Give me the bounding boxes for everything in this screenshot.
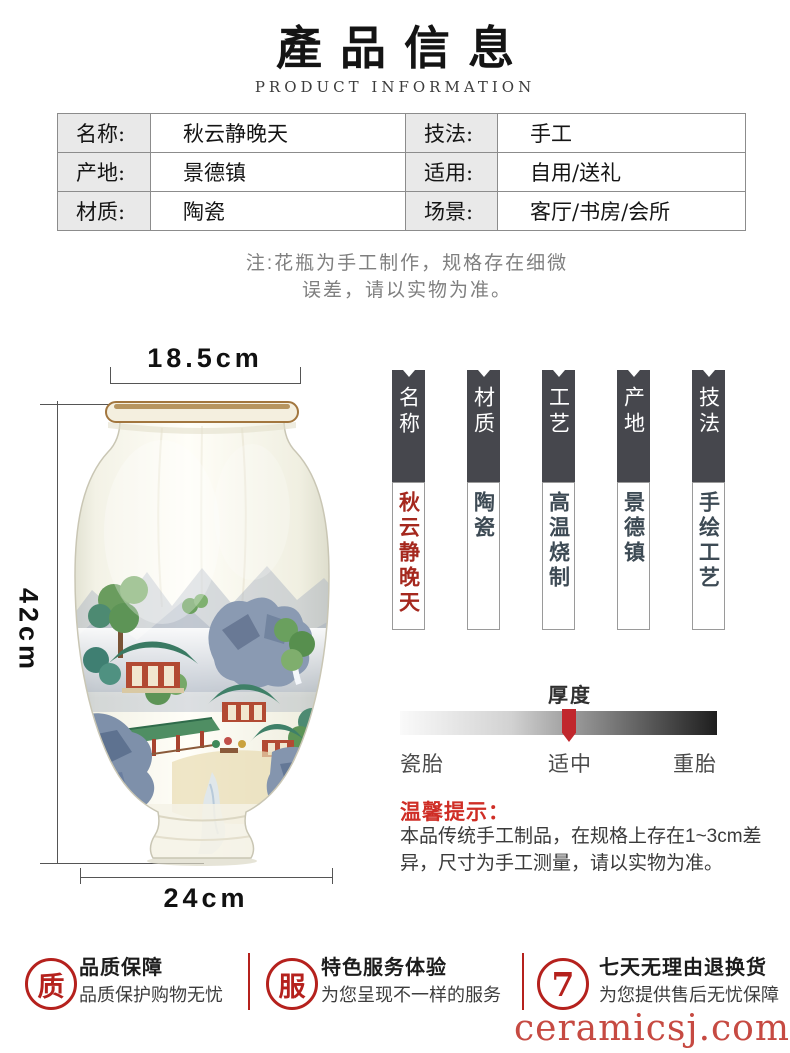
banner-technique-header-label: 技法 [694, 370, 724, 482]
dimension-bottom-width: 24cm [106, 883, 306, 914]
service-badge-title: 特色服务体验 [321, 951, 447, 980]
spec-value-usage: 自用/送礼 [498, 153, 746, 192]
banner-name-value-label: 秋云静晚天 [394, 483, 424, 629]
banner-craft-value-label: 高温烧制 [544, 483, 574, 629]
watermark: ceramicsj.com [514, 1008, 790, 1049]
spec-value-scene: 客厅/书房/会所 [498, 192, 746, 231]
banner-material-header: 材质 [467, 370, 500, 482]
quality-badge-subtitle: 品质保护购物无忧 [79, 981, 223, 1007]
banner-technique-value-label: 手绘工艺 [694, 483, 724, 629]
service-divider [248, 953, 250, 1010]
banner-origin-value-label: 景德镇 [619, 483, 649, 629]
banner-technique: 技法 手绘工艺 [692, 370, 725, 630]
banner-origin: 产地 景德镇 [617, 370, 650, 630]
thickness-marker-icon [562, 709, 576, 742]
tips-line-2: 异，尺寸为手工测量，请以实物为准。 [400, 850, 775, 877]
spec-label-usage: 适用: [406, 153, 498, 192]
service-badge-subtitle: 为您呈现不一样的服务 [321, 981, 501, 1007]
banner-name: 名称 秋云静晚天 [392, 370, 425, 630]
spec-label-scene: 场景: [406, 192, 498, 231]
banner-material-value: 陶瓷 [467, 482, 500, 630]
spec-value-name: 秋云静晚天 [151, 114, 406, 153]
banner-material-header-label: 材质 [469, 370, 499, 482]
dimension-top-width: 18.5cm [105, 343, 305, 374]
note-line-2: 误差，请以实物为准。 [12, 277, 790, 304]
banner-origin-value: 景德镇 [617, 482, 650, 630]
spec-value-technique: 手工 [498, 114, 746, 153]
measure-tick [300, 367, 301, 384]
seven-day-badge-title: 七天无理由退换货 [599, 951, 767, 980]
measure-tick [110, 367, 111, 384]
banner-name-header: 名称 [392, 370, 425, 482]
banner-material-value-label: 陶瓷 [469, 483, 499, 629]
thickness-gradient-bar [400, 711, 717, 735]
thickness-label-heavy: 重胎 [673, 748, 717, 778]
spec-label-material: 材质: [58, 192, 151, 231]
measure-line-bottom [80, 877, 333, 878]
banner-craft-header: 工艺 [542, 370, 575, 482]
vase-product-image [62, 392, 342, 874]
spec-value-origin: 景德镇 [151, 153, 406, 192]
thickness-label-thin: 瓷胎 [400, 748, 444, 778]
thickness-title: 厚度 [520, 679, 620, 708]
handmade-note: 注:花瓶为手工制作，规格存在细微 误差，请以实物为准。 [12, 250, 790, 304]
banner-technique-value: 手绘工艺 [692, 482, 725, 630]
banner-technique-header: 技法 [692, 370, 725, 482]
thickness-label-medium: 适中 [520, 748, 620, 778]
quality-badge-icon: 质 [25, 958, 77, 1010]
note-line-1: 注:花瓶为手工制作，规格存在细微 [12, 250, 790, 277]
banner-origin-header: 产地 [617, 370, 650, 482]
tips-line-1: 本品传统手工制品，在规格上存在1~3cm差 [400, 823, 775, 850]
dimension-height: 42cm [13, 586, 44, 676]
page-subtitle: PRODUCT INFORMATION [0, 78, 790, 96]
tips-title: 温馨提示： [400, 796, 510, 826]
quality-badge-title: 品质保障 [79, 951, 163, 980]
banner-name-value: 秋云静晚天 [392, 482, 425, 630]
banner-material: 材质 陶瓷 [467, 370, 500, 630]
banner-craft-header-label: 工艺 [544, 370, 574, 482]
vase-illustration [62, 392, 342, 874]
tips-body: 本品传统手工制品，在规格上存在1~3cm差 异，尺寸为手工测量，请以实物为准。 [400, 823, 775, 877]
spec-table: 名称: 秋云静晚天 技法: 手工 产地: 景德镇 适用: 自用/送礼 材质: 陶… [57, 113, 746, 231]
measure-line-height [57, 401, 58, 863]
banner-origin-header-label: 产地 [619, 370, 649, 482]
banner-name-header-label: 名称 [394, 370, 424, 482]
banner-craft: 工艺 高温烧制 [542, 370, 575, 630]
measure-line-top [110, 383, 301, 384]
product-info-page: 產品信息 PRODUCT INFORMATION 名称: 秋云静晚天 技法: 手… [0, 0, 790, 1053]
service-badge-icon: 服 [266, 958, 318, 1010]
spec-label-technique: 技法: [406, 114, 498, 153]
seven-day-badge-subtitle: 为您提供售后无忧保障 [599, 981, 779, 1007]
banner-craft-value: 高温烧制 [542, 482, 575, 630]
spec-value-material: 陶瓷 [151, 192, 406, 231]
seven-day-badge-icon: 7 [537, 958, 589, 1010]
page-title: 產品信息 [0, 12, 790, 78]
service-divider [522, 953, 524, 1010]
spec-label-name: 名称: [58, 114, 151, 153]
spec-label-origin: 产地: [58, 153, 151, 192]
